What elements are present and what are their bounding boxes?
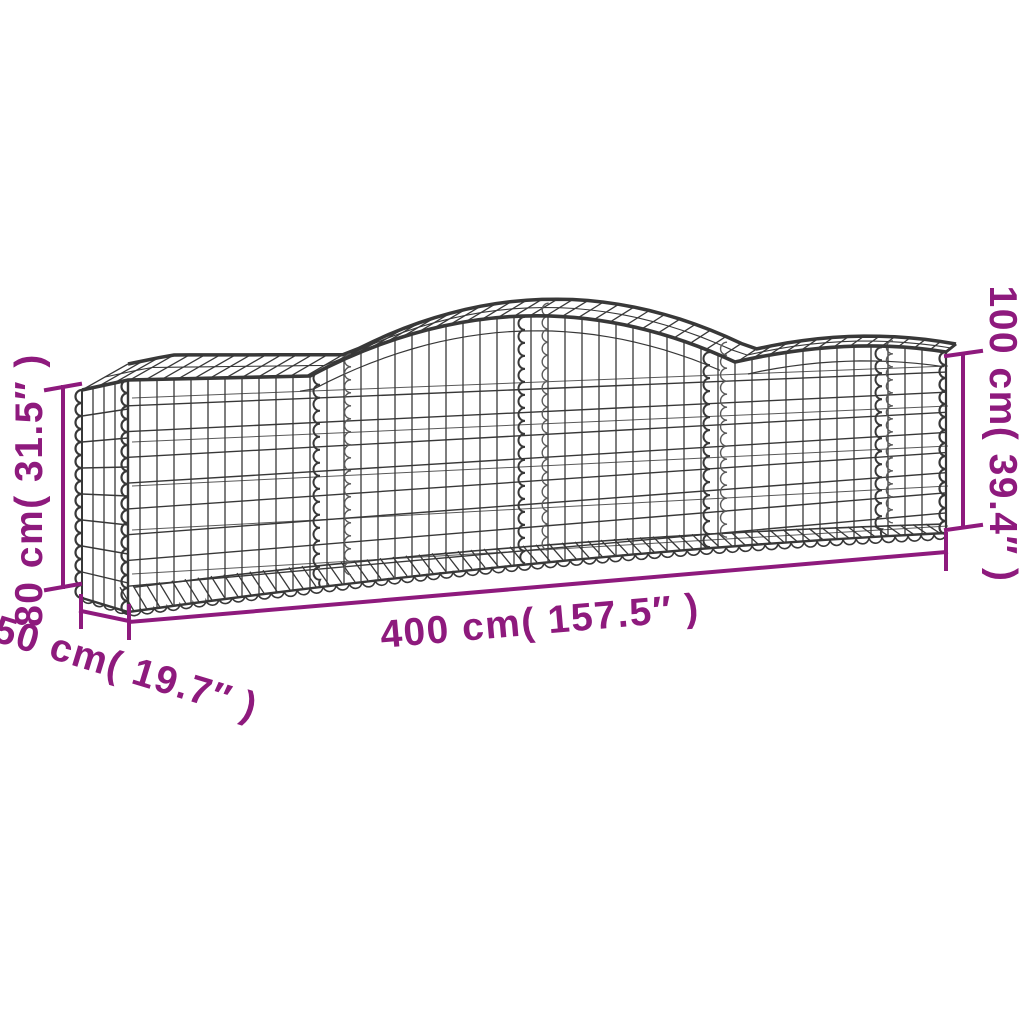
bottom-face-wire bbox=[523, 546, 537, 563]
dimension-height-left-label: 80 cm( 31.5″ ) bbox=[8, 353, 51, 627]
end-face-wire bbox=[82, 494, 128, 496]
bottom-face-wire bbox=[497, 548, 511, 565]
dimension-height-right-label: 100 cm( 39.4″ ) bbox=[981, 285, 1024, 582]
mesh-wire-arch bbox=[300, 331, 720, 391]
product-dimension-diagram: 80 cm( 31.5″ ) 100 cm( 39.4″ ) 400 cm( 1… bbox=[0, 0, 1024, 1024]
bottom-face-wire bbox=[861, 526, 875, 536]
bottom-face-wire bbox=[926, 524, 940, 533]
mesh-wire-horizontal bbox=[128, 453, 946, 509]
mesh-wire-horizontal bbox=[128, 412, 946, 457]
bottom-face-wire bbox=[887, 525, 901, 535]
bottom-face-wire bbox=[900, 525, 914, 535]
dimension-height-left: 80 cm( 31.5″ ) bbox=[8, 353, 80, 627]
mesh-wire-horizontal bbox=[128, 432, 946, 483]
bottom-face-wire bbox=[146, 584, 160, 607]
bottom-face-wire bbox=[380, 558, 394, 577]
dimension-depth-label: 50 cm( 19.7″ ) bbox=[0, 608, 263, 729]
bottom-face-wire bbox=[913, 525, 927, 534]
bottom-face-wire bbox=[471, 550, 485, 567]
bottom-face-wire bbox=[224, 575, 238, 597]
bottom-face-wire bbox=[198, 578, 212, 600]
bottom-face-wire bbox=[549, 544, 563, 560]
spiral-wire bbox=[721, 342, 727, 537]
dimension-cap bbox=[946, 525, 981, 530]
end-face-wire bbox=[82, 520, 128, 525]
gabion-basket-drawing bbox=[76, 299, 957, 616]
bottom-face-wire bbox=[562, 543, 576, 559]
spiral-wire bbox=[314, 372, 321, 586]
bottom-face-wire bbox=[185, 579, 199, 602]
bottom-face-wire bbox=[406, 556, 420, 575]
top-face-wire bbox=[105, 308, 951, 378]
bottom-face-wire bbox=[484, 549, 498, 566]
dimension-line bbox=[81, 611, 129, 621]
gabion-diagram-canvas: 80 cm( 31.5″ ) 100 cm( 39.4″ ) 400 cm( 1… bbox=[0, 0, 1024, 1024]
mesh-wire-horizontal bbox=[128, 473, 946, 535]
bottom-face-wire bbox=[419, 555, 433, 573]
bottom-face-wire bbox=[159, 582, 173, 605]
bottom-face-wire bbox=[341, 562, 355, 582]
bottom-face-wire bbox=[367, 559, 381, 578]
bottom-face-wire bbox=[211, 576, 225, 598]
bottom-face-wire bbox=[328, 563, 342, 583]
dimension-cap bbox=[946, 351, 981, 356]
dimension-height-right: 100 cm( 39.4″ ) bbox=[946, 285, 1024, 582]
spiral-wire bbox=[518, 317, 525, 564]
